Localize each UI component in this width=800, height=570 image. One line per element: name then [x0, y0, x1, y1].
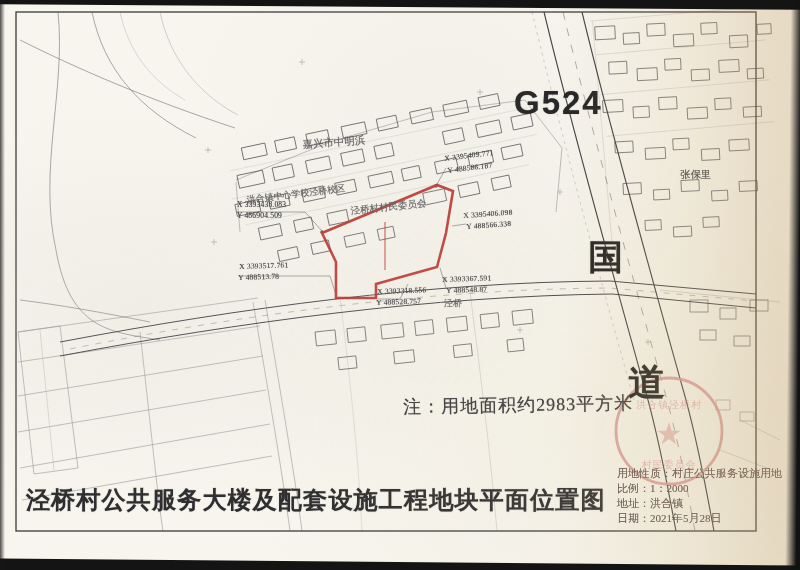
- info-address: 地址：洪合镇: [617, 496, 782, 511]
- survey-point-4-x: X 3393318.556: [377, 285, 427, 296]
- info-date: 日期：2021年5月28日: [617, 511, 782, 526]
- hamlet-south-label: 泾桥: [444, 297, 462, 310]
- survey-point-4-y: Y 488528.757: [376, 296, 421, 307]
- area-note: 注：用地面积约2983平方米: [403, 391, 633, 419]
- survey-point-0-x: X 3393438.083: [237, 200, 286, 209]
- info-scale: 比例：1：2000: [617, 481, 782, 496]
- survey-point-5-y: Y 488548.87: [446, 285, 487, 295]
- south-buildings: [315, 309, 536, 372]
- national-road-char-guo: 国: [588, 234, 623, 281]
- survey-point-3-x: X 3393517.761: [239, 260, 289, 271]
- survey-point-0-y: Y 486904.509: [237, 211, 282, 220]
- scanned-site-plan-page: ★ 洪合镇泾桥村 村民委员会 G524 国 道 嘉兴市中明浜 洪合镇中心学校泾桥…: [0, 0, 800, 570]
- info-land-use: 用地性质：村庄公共服务设施用地: [617, 466, 782, 481]
- canal-lines: [20, 12, 238, 340]
- highway-label-g524: G524: [514, 84, 603, 122]
- survey-point-5-x: X 3393367.591: [442, 273, 492, 284]
- national-road-char-dao: 道: [628, 358, 665, 408]
- stamp-star-icon: ★: [656, 417, 683, 450]
- info-block: 用地性质：村庄公共服务设施用地 比例：1：2000 地址：洪合镇 日期：2021…: [617, 466, 782, 526]
- survey-point-3-y: Y 488513.78: [238, 272, 279, 282]
- page-title: 泾桥村公共服务大楼及配套设施工程地块平面位置图: [26, 484, 606, 516]
- hamlet-east-label: 张保里: [680, 168, 712, 182]
